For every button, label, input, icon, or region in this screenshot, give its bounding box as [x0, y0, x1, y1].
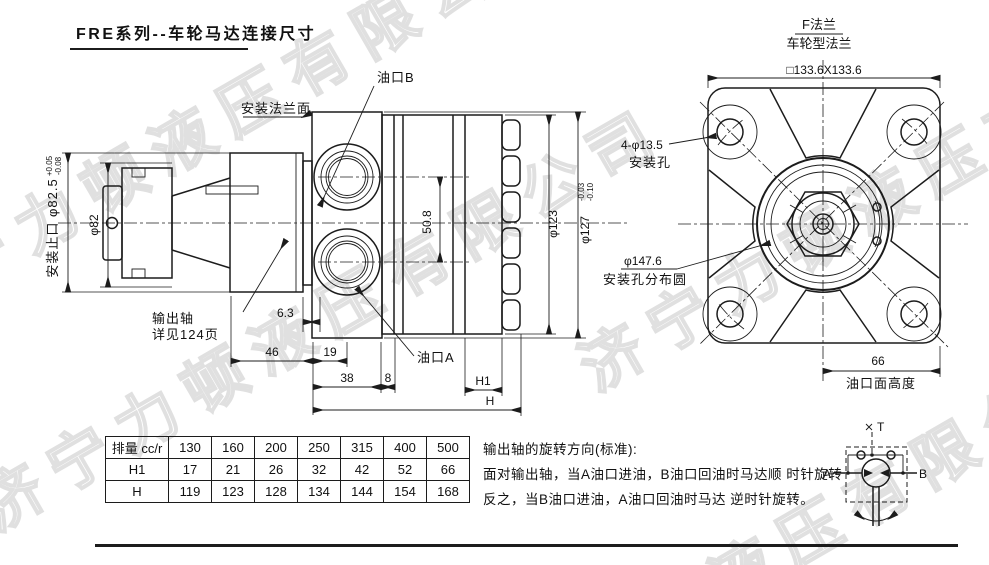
symbol-port-b: B — [919, 467, 927, 481]
dim-66-label: 66 — [871, 354, 885, 368]
table-header-row: 排量 cc/r 130 160 200 250 315 400 500 — [106, 437, 470, 459]
page-title: FRE系列--车轮马达连接尺寸 — [76, 20, 316, 44]
body-dia-label: φ123 — [546, 210, 560, 238]
dim-6-3-label: 6.3 — [277, 306, 294, 320]
bolt-circle-label-2: 安装孔分布圆 — [603, 272, 687, 287]
spigot-label: 安装止口 φ82.5 — [45, 178, 60, 277]
spigot-tol-lower: -0.08 — [54, 156, 63, 175]
mounting-spigot — [230, 153, 303, 292]
pilot-dia-label: φ127 — [578, 216, 592, 244]
title-underline — [70, 48, 248, 50]
mount-holes-label-2: 安装孔 — [629, 155, 671, 170]
drawing-page: 济宁力顿液压有限公司 济宁力顿液压有限公司 济宁力顿液压有限公司 济宁力顿液压有… — [0, 0, 989, 565]
pilot-tol-upper: -0.03 — [577, 182, 586, 201]
square-dim-label: □133.6X133.6 — [786, 63, 862, 77]
end-cover-bolts — [502, 120, 520, 330]
port-b-label: 油口B — [377, 70, 415, 85]
pilot-tol-lower: -0.10 — [586, 182, 595, 201]
rotation-note-line1: 输出轴的旋转方向(标准): — [483, 437, 842, 462]
table-row-h: H 119 123 128 134 144 154 168 — [106, 481, 470, 503]
table-row-h1: H1 17 21 26 32 42 52 66 — [106, 459, 470, 481]
dim-19-label: 19 — [323, 345, 337, 359]
output-shaft-note: 输出轴 — [152, 311, 194, 326]
bolt-circle-label: φ147.6 — [624, 254, 662, 268]
symbol-port-t: T — [877, 420, 885, 434]
rotation-note-line3: 反之，当B油口进油，A油口回油时马达 逆时针旋转。 — [483, 487, 842, 512]
dim-h-label: H — [486, 394, 495, 408]
port-a-label: 油口A — [417, 350, 455, 365]
header-displacement: 排量 cc/r — [106, 437, 169, 459]
shaft-key — [206, 186, 258, 194]
front-view-drawing: F法兰 车轮型法兰 □133.6X133.6 4-φ13.5 安装孔 φ147.… — [603, 17, 968, 391]
dim-8-label: 8 — [385, 371, 392, 385]
rotation-direction-note: 输出轴的旋转方向(标准): 面对输出轴，当A油口进油，B油口回油时马达顺 时针旋… — [483, 437, 842, 512]
rotation-arrow — [856, 513, 896, 521]
flange-name-line1: F法兰 — [802, 17, 836, 32]
dim-h1-label: H1 — [475, 374, 491, 388]
displacement-spec-table: 排量 cc/r 130 160 200 250 315 400 500 H1 1… — [105, 436, 470, 503]
bottom-rule — [95, 544, 958, 547]
mount-holes-label: 4-φ13.5 — [621, 138, 663, 152]
port-face-height-label: 油口面高度 — [846, 376, 916, 391]
side-view-drawing: 油口B 安装法兰面 安装止口 φ82.5 +0.05 -0.08 φ82 输出轴… — [45, 70, 628, 416]
output-shaft-note-2: 详见124页 — [152, 327, 219, 342]
dim-38-label: 38 — [340, 371, 354, 385]
flange-name-line2: 车轮型法兰 — [786, 36, 851, 51]
dim-46-label: 46 — [265, 345, 279, 359]
spigot-tol-upper: +0.05 — [45, 155, 54, 176]
dim-50-8-label: 50.8 — [420, 210, 434, 234]
mounting-face-label: 安装法兰面 — [241, 101, 311, 116]
shaft-dia-label: φ82 — [87, 214, 101, 235]
motor-body — [382, 115, 502, 334]
rotation-note-line2: 面对输出轴，当A油口进油，B油口回油时马达顺 时针旋转 — [483, 462, 842, 487]
